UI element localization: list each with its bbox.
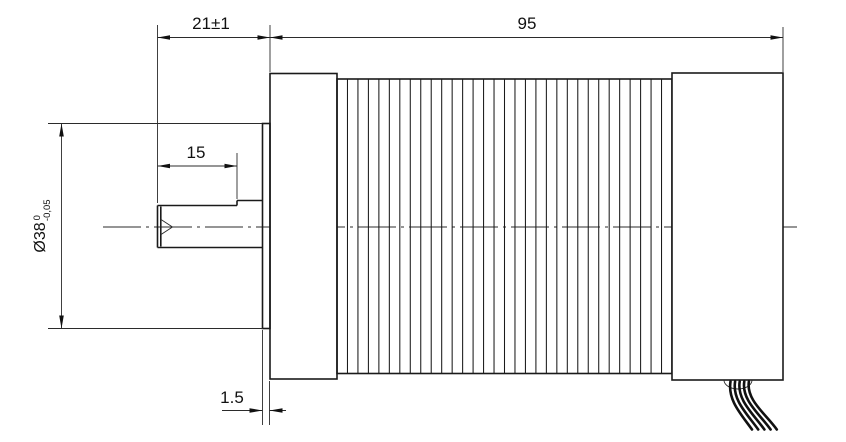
dim-arrow-left bbox=[158, 164, 171, 169]
dim-arrow-left bbox=[158, 35, 171, 40]
dim-arrow-right bbox=[258, 35, 271, 40]
dimension-body-length: 95 bbox=[270, 14, 783, 72]
dim-arrow-left bbox=[270, 35, 283, 40]
dimension-shaft-overall-length: 21±1 bbox=[158, 14, 271, 203]
dimension-shaft-front-length: 15 bbox=[158, 143, 238, 199]
dim-arrow-down bbox=[59, 316, 64, 329]
boss-thickness-label: 1.5 bbox=[220, 388, 244, 407]
shaft-overall-length-label: 21±1 bbox=[192, 14, 230, 33]
dimension-boss-diameter: Ø380-0,05 bbox=[32, 124, 263, 329]
dim-arrow-right bbox=[250, 408, 263, 413]
shaft-front-length-label: 15 bbox=[187, 143, 206, 162]
body-length-label: 95 bbox=[518, 14, 537, 33]
dim-arrow-left bbox=[270, 408, 283, 413]
motor-shaft bbox=[158, 201, 263, 248]
rear-endbell bbox=[672, 73, 783, 380]
dim-arrow-up bbox=[59, 124, 64, 137]
motor-drawing-svg: 21±1 95 15 Ø380-0,05 1.5 bbox=[0, 0, 846, 442]
boss-diameter-label: Ø380-0,05 bbox=[32, 199, 53, 252]
technical-drawing-canvas: 21±1 95 15 Ø380-0,05 1.5 bbox=[0, 0, 846, 442]
dim-arrow-right bbox=[225, 164, 238, 169]
front-endbell bbox=[270, 74, 337, 380]
mounting-boss bbox=[263, 124, 271, 329]
cooling-fins bbox=[337, 79, 672, 374]
dim-arrow-right bbox=[771, 35, 784, 40]
